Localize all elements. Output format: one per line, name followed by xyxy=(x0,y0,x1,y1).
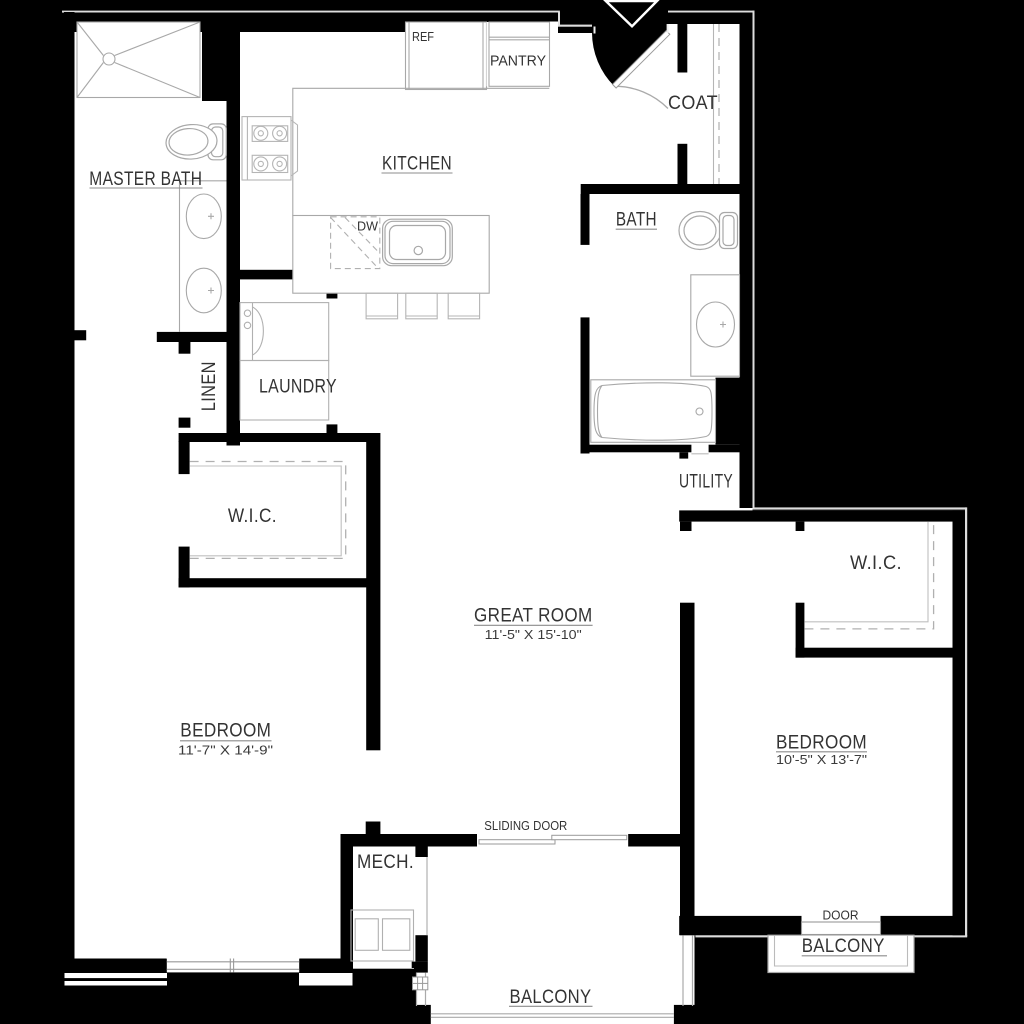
svg-text:11'-5" X 15'-10": 11'-5" X 15'-10" xyxy=(485,627,582,642)
svg-text:BALCONY: BALCONY xyxy=(510,987,592,1008)
svg-text:10'-5" X 13'-7": 10'-5" X 13'-7" xyxy=(776,752,867,767)
svg-text:MASTER BATH: MASTER BATH xyxy=(89,169,202,190)
svg-text:BALCONY: BALCONY xyxy=(802,936,885,957)
svg-text:W.I.C.: W.I.C. xyxy=(850,553,902,574)
svg-text:SLIDING DOOR: SLIDING DOOR xyxy=(484,818,567,833)
svg-text:PANTRY: PANTRY xyxy=(490,53,546,70)
svg-text:UTILITY: UTILITY xyxy=(679,472,733,493)
svg-text:KITCHEN: KITCHEN xyxy=(382,154,452,175)
svg-text:REF: REF xyxy=(412,29,434,44)
svg-text:BEDROOM: BEDROOM xyxy=(180,721,271,742)
svg-text:COAT: COAT xyxy=(668,93,718,114)
svg-text:GREAT ROOM: GREAT ROOM xyxy=(474,606,593,627)
svg-text:11'-7" X 14'-9": 11'-7" X 14'-9" xyxy=(178,743,273,758)
svg-text:MECH.: MECH. xyxy=(357,852,414,873)
svg-text:LAUNDRY: LAUNDRY xyxy=(259,377,337,398)
svg-text:LINEN: LINEN xyxy=(199,361,220,411)
svg-text:BATH: BATH xyxy=(616,210,657,231)
svg-text:DOOR: DOOR xyxy=(823,908,859,923)
svg-text:BEDROOM: BEDROOM xyxy=(776,733,867,754)
svg-text:W.I.C.: W.I.C. xyxy=(228,506,277,527)
svg-text:DW: DW xyxy=(357,219,379,234)
